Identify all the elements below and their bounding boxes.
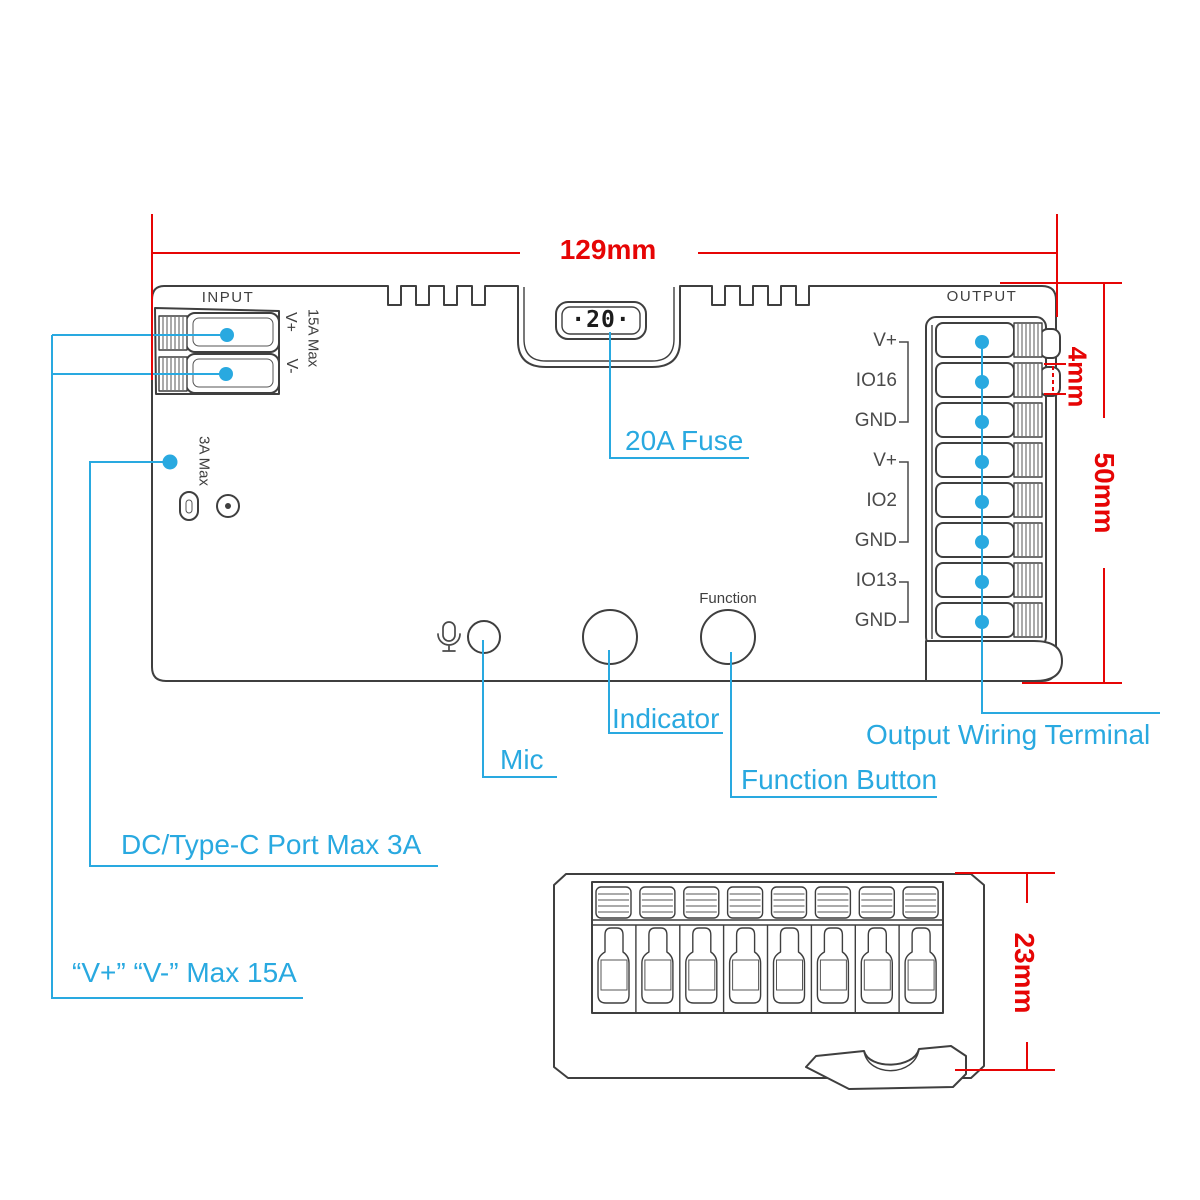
callout-function-button: Function Button — [741, 764, 937, 796]
output-terminal-block — [926, 317, 1062, 681]
dimension-depth-label: 23mm — [1008, 933, 1040, 1014]
pin-label: IO2 — [810, 490, 897, 512]
side-view-body — [554, 874, 984, 1089]
dimension-width-label: 129mm — [543, 234, 673, 266]
input-port-label: INPUT — [193, 289, 263, 306]
pin-label: IO13 — [810, 570, 897, 592]
callout-output-terminal: Output Wiring Terminal — [866, 719, 1150, 751]
diagram-line-art — [0, 0, 1200, 1200]
input-vplus-label: V+ — [281, 312, 299, 332]
function-button[interactable] — [701, 610, 755, 664]
fuse-display-value: ·20· — [560, 307, 642, 333]
function-button-label: Function — [690, 590, 766, 607]
callout-fuse: 20A Fuse — [625, 425, 743, 457]
callout-dc-port: DC/Type-C Port Max 3A — [121, 829, 421, 861]
output-port-label: OUTPUT — [941, 288, 1023, 305]
callout-indicator: Indicator — [612, 703, 719, 735]
pin-label: V+ — [810, 330, 897, 352]
dc-port-max-label: 3A Max — [196, 436, 213, 486]
product-dimension-diagram: 129mm 50mm 4mm 23mm INPUT OUTPUT ·20· Fu… — [0, 0, 1200, 1200]
input-max-current-label: 15A Max — [305, 309, 322, 367]
pin-label: GND — [810, 610, 897, 632]
callout-power-input: “V+” “V-” Max 15A — [72, 957, 297, 989]
dimension-height-label: 50mm — [1088, 453, 1120, 534]
callout-mic: Mic — [500, 744, 544, 776]
dimension-pitch-label: 4mm — [1062, 347, 1093, 408]
pin-label: GND — [810, 410, 897, 432]
pin-label: GND — [810, 530, 897, 552]
input-vminus-label: V- — [282, 358, 300, 373]
pin-label: V+ — [810, 450, 897, 472]
input-terminal-block — [155, 308, 279, 394]
pin-label: IO16 — [810, 370, 897, 392]
